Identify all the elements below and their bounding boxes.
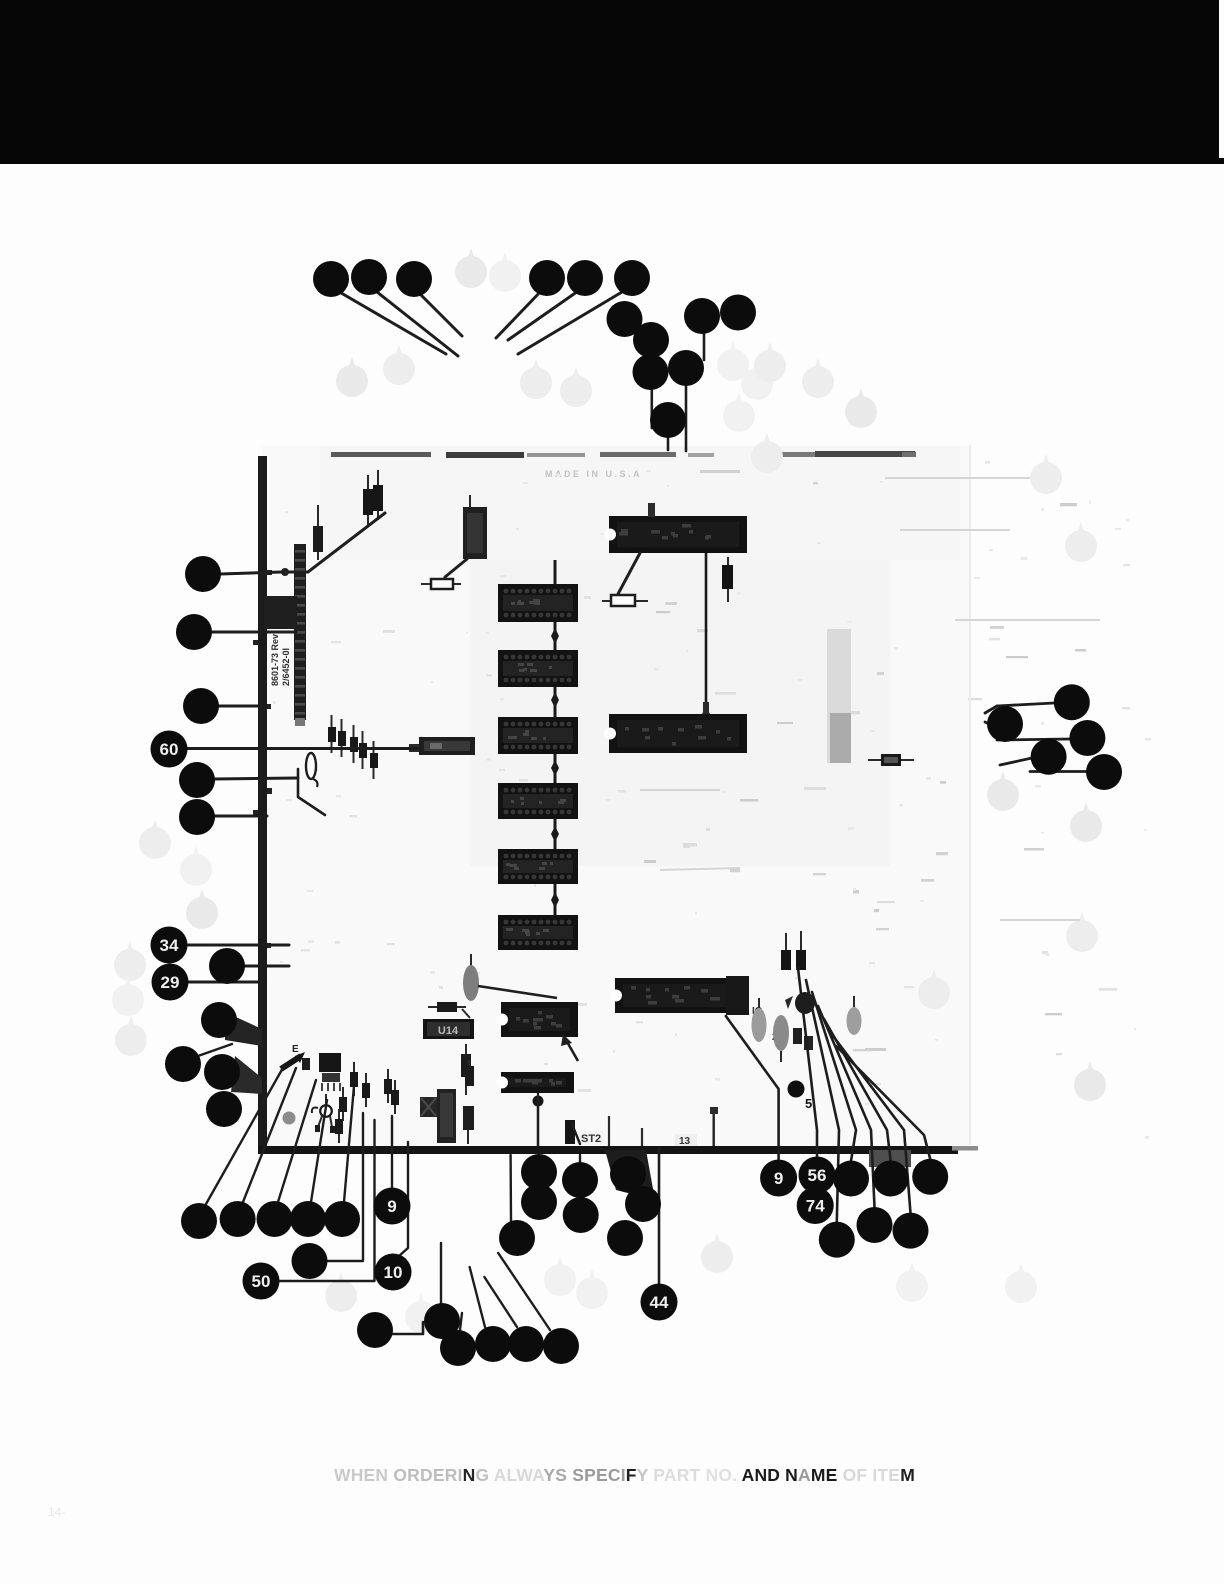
- svg-text:44: 44: [650, 1293, 669, 1312]
- svg-text:2/6452-0l: 2/6452-0l: [281, 648, 291, 686]
- svg-text:13: 13: [679, 1136, 691, 1147]
- svg-text:56: 56: [808, 1166, 827, 1185]
- svg-text:8601-73 Rev: 8601-73 Rev: [270, 634, 280, 686]
- svg-text:50: 50: [252, 1272, 271, 1291]
- svg-text:WHEN ORDERING ALWAYS SPECIFY P: WHEN ORDERING ALWAYS SPECIFY PART NO. AN…: [334, 1465, 915, 1485]
- svg-text:9: 9: [387, 1197, 396, 1216]
- svg-text:U14: U14: [438, 1025, 459, 1037]
- svg-text:34: 34: [160, 936, 179, 955]
- svg-text:10: 10: [384, 1263, 403, 1282]
- svg-text:9: 9: [774, 1169, 783, 1188]
- svg-text:5: 5: [805, 1096, 812, 1111]
- svg-text:14-: 14-: [48, 1505, 65, 1519]
- svg-text:74: 74: [806, 1197, 825, 1216]
- svg-text:29: 29: [161, 973, 180, 992]
- svg-text:ST2: ST2: [581, 1133, 601, 1145]
- svg-text:E: E: [292, 1044, 299, 1055]
- svg-text:60: 60: [160, 740, 179, 759]
